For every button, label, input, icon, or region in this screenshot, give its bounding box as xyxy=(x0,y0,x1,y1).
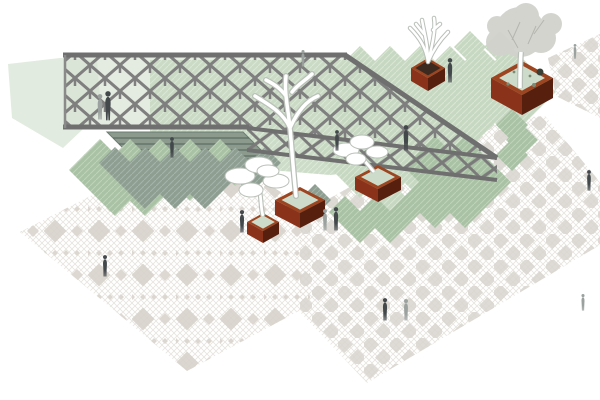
planting-speckle xyxy=(532,83,536,87)
planting-speckle xyxy=(529,75,532,78)
plaza-diagram: Plaza axonometric diagram xyxy=(0,0,600,400)
planting-speckle xyxy=(537,69,544,76)
planting-speckle xyxy=(513,71,516,74)
paving-ornamental xyxy=(20,173,310,371)
person-figure xyxy=(581,294,584,311)
planting-speckle xyxy=(506,82,509,85)
site-plan-canvas: Plaza axonometric diagram xyxy=(0,0,600,400)
